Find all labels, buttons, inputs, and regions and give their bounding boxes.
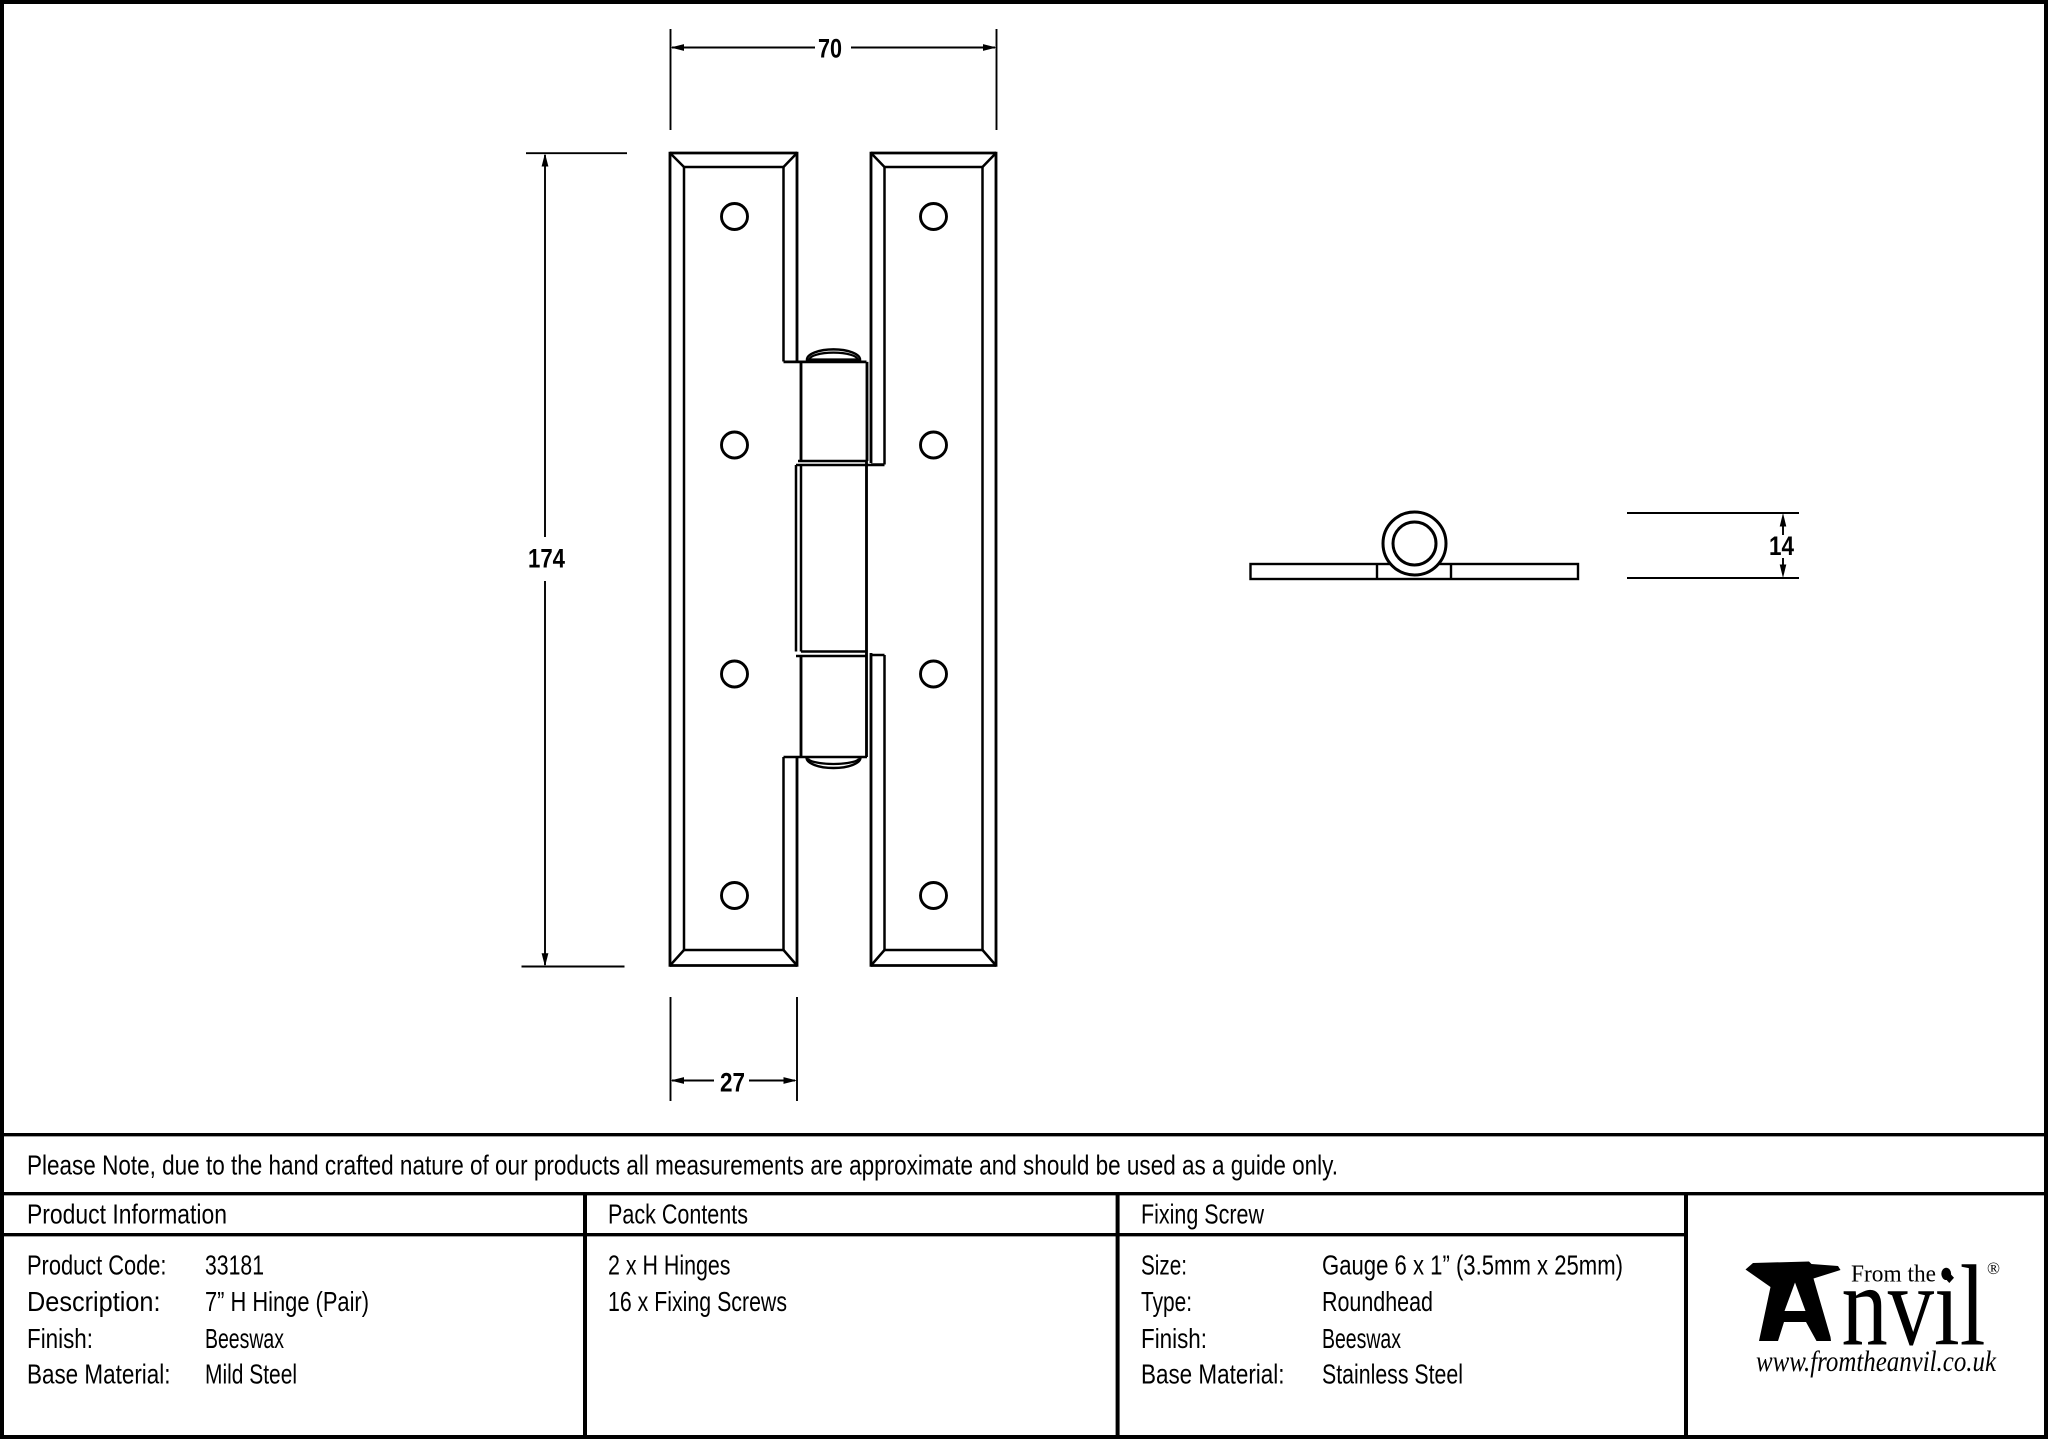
svg-text:2 x H Hinges: 2 x H Hinges: [608, 1250, 731, 1281]
svg-text:Base Material:: Base Material:: [27, 1359, 171, 1390]
svg-text:Fixing Screw: Fixing Screw: [1141, 1199, 1265, 1230]
svg-text:Finish:: Finish:: [27, 1323, 93, 1354]
svg-text:Stainless Steel: Stainless Steel: [1322, 1359, 1463, 1390]
svg-text:Base Material:: Base Material:: [1141, 1359, 1285, 1390]
svg-text:Pack Contents: Pack Contents: [608, 1199, 748, 1230]
svg-text:Description:: Description:: [27, 1286, 161, 1317]
svg-text:Product Information: Product Information: [27, 1199, 227, 1230]
svg-text:Roundhead: Roundhead: [1322, 1286, 1433, 1317]
svg-text:Finish:: Finish:: [1141, 1323, 1207, 1354]
svg-text:Size:: Size:: [1141, 1250, 1187, 1281]
svg-text:Type:: Type:: [1141, 1286, 1192, 1317]
svg-text:Gauge 6 x 1” (3.5mm x 25mm): Gauge 6 x 1” (3.5mm x 25mm): [1322, 1250, 1623, 1281]
svg-text:Mild Steel: Mild Steel: [205, 1359, 297, 1390]
svg-text:7” H Hinge (Pair): 7” H Hinge (Pair): [205, 1286, 369, 1317]
svg-text:16 x Fixing Screws: 16 x Fixing Screws: [608, 1286, 787, 1317]
svg-text:Product Code:: Product Code:: [27, 1250, 167, 1281]
svg-text:®: ®: [1987, 1259, 2000, 1278]
svg-text:Beeswax: Beeswax: [1322, 1323, 1401, 1354]
svg-text:70: 70: [818, 34, 842, 64]
svg-text:27: 27: [720, 1068, 745, 1098]
svg-text:Please Note, due to the hand c: Please Note, due to the hand crafted nat…: [27, 1150, 1338, 1181]
svg-text:www.fromtheanvil.co.uk: www.fromtheanvil.co.uk: [1756, 1345, 1997, 1378]
svg-text:33181: 33181: [205, 1250, 264, 1281]
svg-text:14: 14: [1769, 531, 1794, 561]
svg-text:Beeswax: Beeswax: [205, 1323, 284, 1354]
svg-text:174: 174: [528, 544, 565, 574]
